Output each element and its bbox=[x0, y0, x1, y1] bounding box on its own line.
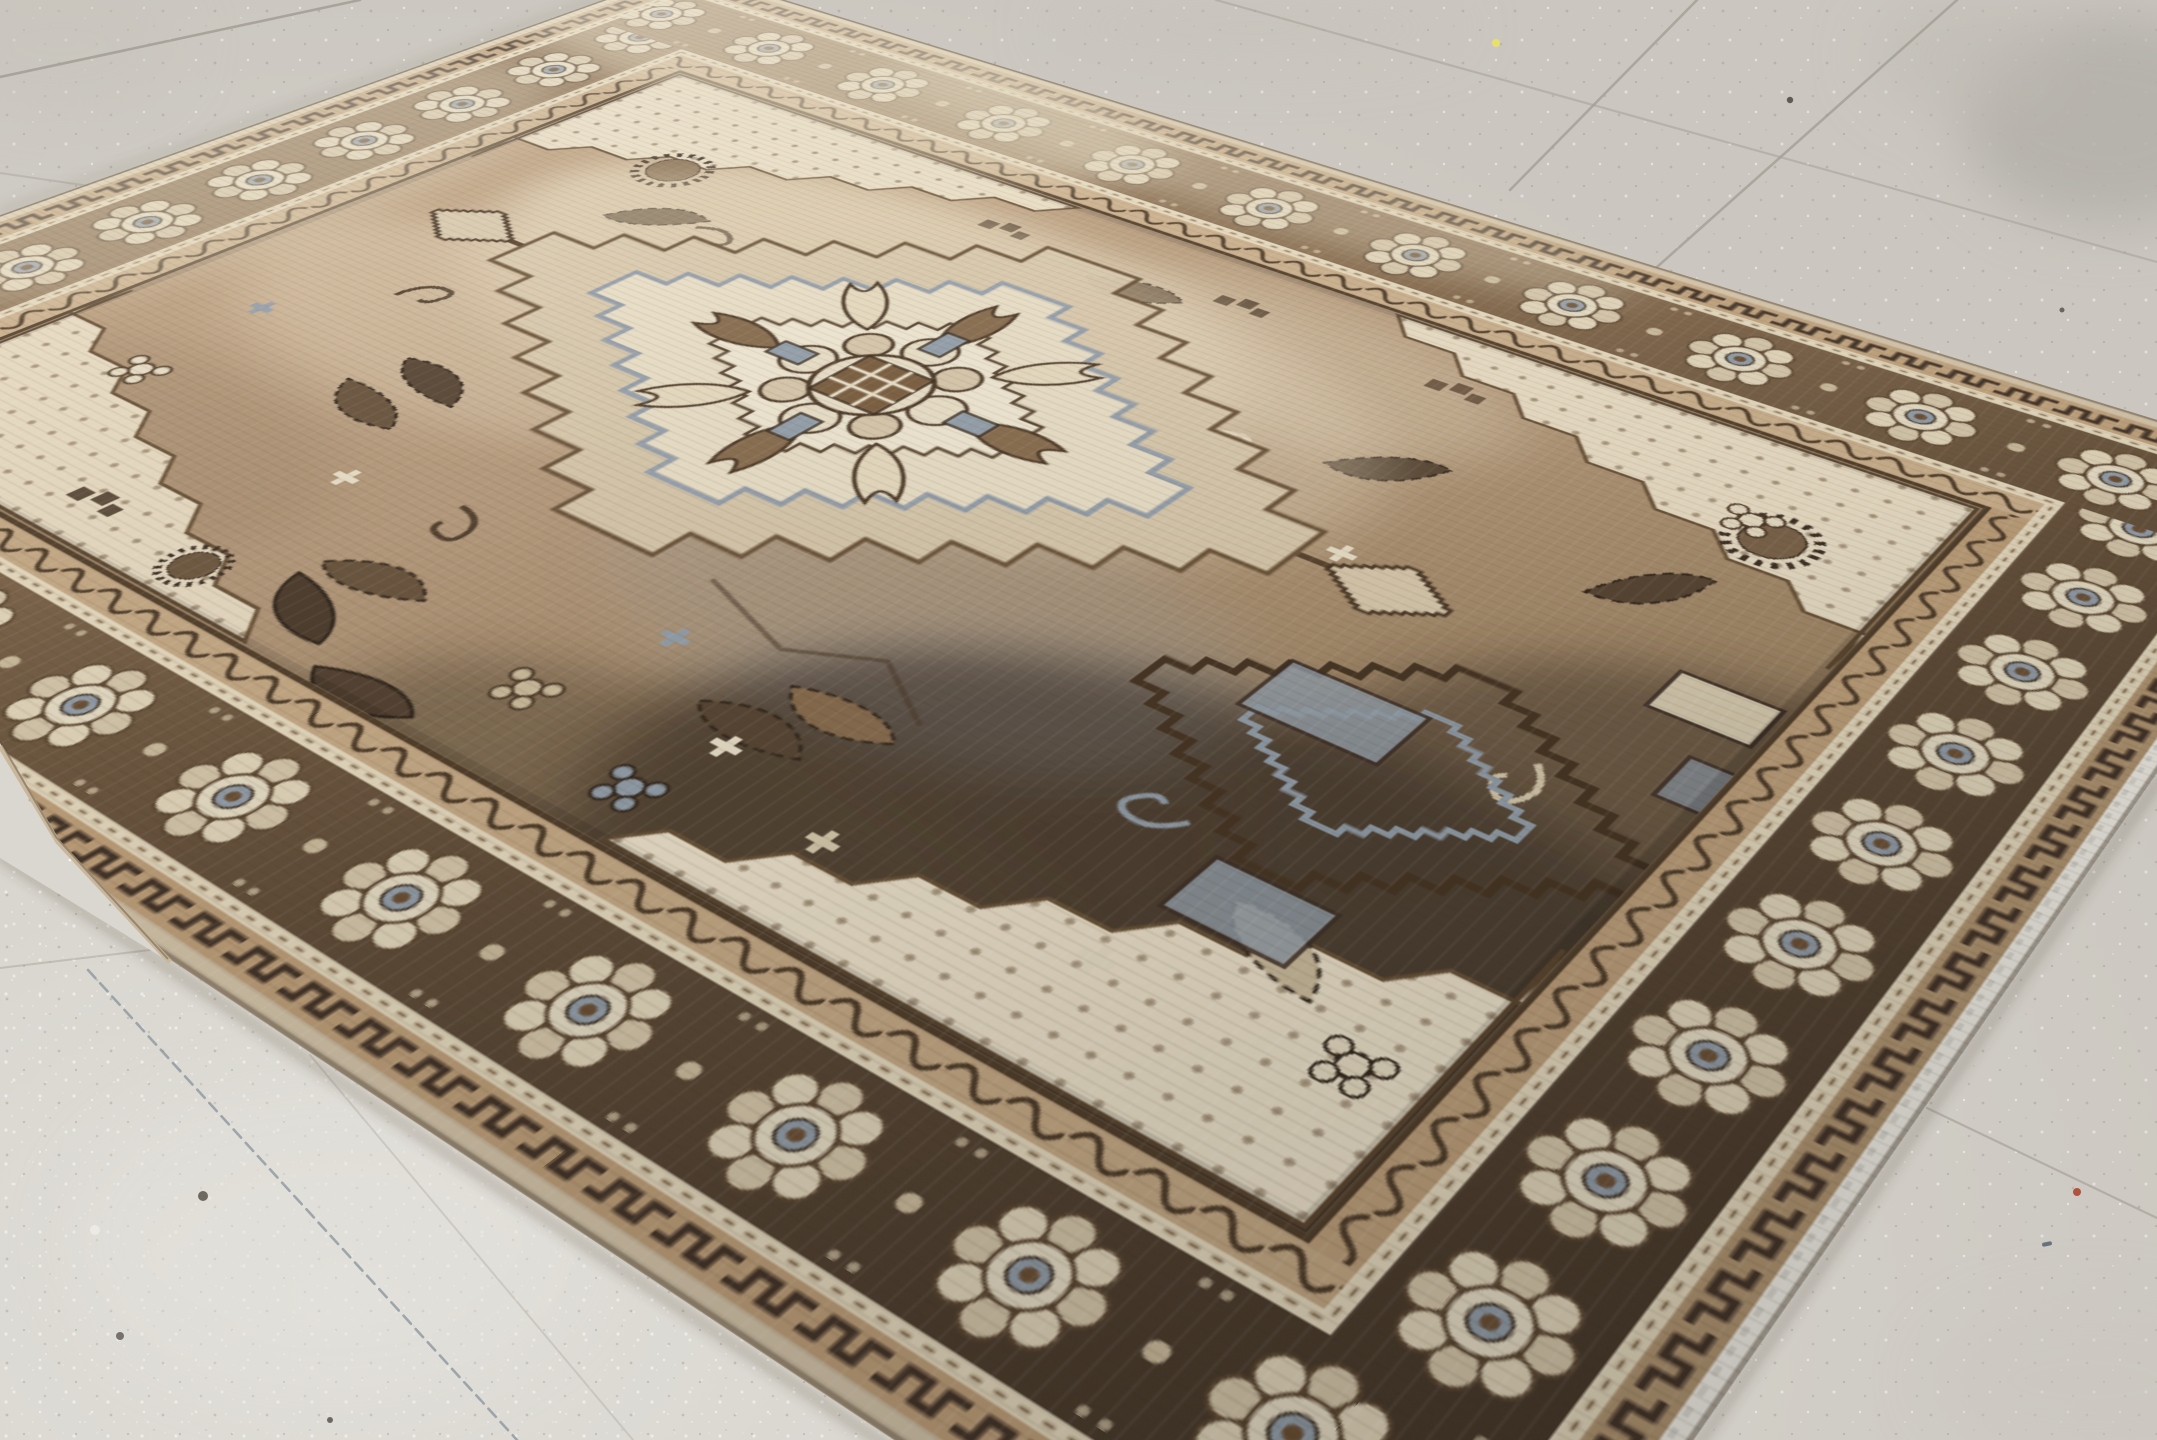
photo-rug-on-concrete-floor: Angled view of a large vintage Persian H… bbox=[0, 0, 2157, 1440]
floor-patch-rug-corner bbox=[0, 0, 2157, 1440]
